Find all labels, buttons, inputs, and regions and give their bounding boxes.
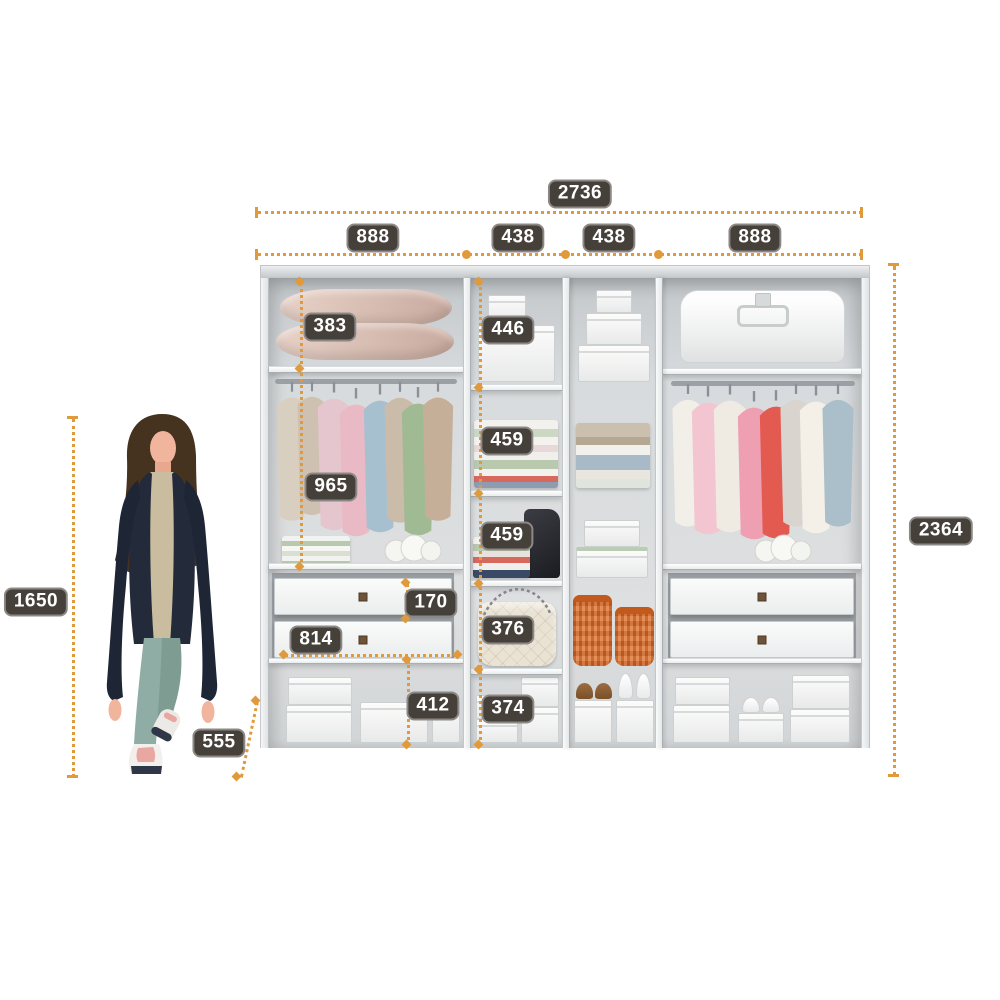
dim-line-total-height (893, 266, 896, 776)
dim-line-total-width (258, 211, 862, 214)
wardrobe-left-wall (260, 278, 269, 748)
shoe-box (792, 675, 850, 709)
dim-label-mid-shelf3: 459 (480, 522, 533, 551)
dim-label-section-1: 888 (346, 224, 399, 253)
dim-marker (462, 250, 471, 259)
dim-label-person-height: 1650 (4, 588, 68, 617)
dim-line-sections (258, 253, 862, 256)
dim-marker (561, 250, 570, 259)
dim-label-mid-shelf2: 459 (480, 427, 533, 456)
dim-marker (654, 250, 663, 259)
shelf-mid (471, 668, 562, 675)
shoe (595, 683, 612, 699)
shoe-box (675, 677, 730, 705)
wardrobe-top-panel (260, 265, 870, 278)
dim-label-mid-top-shelf: 446 (481, 316, 534, 345)
shelf-mid (471, 490, 562, 497)
dim-cap (860, 207, 863, 218)
dim-cap (860, 249, 863, 260)
wardrobe (260, 265, 870, 780)
shoe-box (286, 705, 352, 743)
suitcase (680, 290, 845, 363)
dim-label-mid-bottom: 374 (481, 695, 534, 724)
shoe-box (616, 700, 654, 743)
shelf-mid (471, 384, 562, 391)
storage-box (578, 345, 650, 382)
storage-box (584, 520, 640, 547)
dim-label-section-3: 438 (582, 224, 635, 253)
drawer (670, 621, 854, 658)
wardrobe-right-wall (861, 278, 870, 748)
dim-label-left-bottom: 412 (406, 692, 459, 721)
dim-marker (251, 696, 261, 706)
dim-cap (888, 263, 899, 266)
folded-clothes-stack (282, 536, 350, 563)
basket (615, 607, 654, 666)
handbag-chain (478, 587, 556, 617)
dim-line-person-height (72, 419, 75, 777)
drawer (670, 578, 854, 615)
dim-cap (67, 775, 78, 778)
shoe (576, 683, 593, 699)
dim-label-left-top-shelf: 383 (303, 313, 356, 342)
divider-2 (562, 278, 570, 748)
rolled-towels (752, 533, 814, 563)
dim-label-left-hanging: 965 (304, 473, 357, 502)
shoe-box (790, 709, 850, 743)
dim-cap (888, 774, 899, 777)
shoe-box (288, 677, 352, 705)
divider-3 (655, 278, 663, 748)
storage-box (586, 313, 642, 345)
storage-box (596, 290, 632, 313)
shoe-box (673, 705, 730, 743)
dim-label-section-4: 888 (728, 224, 781, 253)
dim-label-drawer-width: 814 (289, 626, 342, 655)
dim-cap (67, 416, 78, 419)
dim-label-depth: 555 (192, 729, 245, 758)
shelf-right-mid (663, 563, 861, 570)
dim-label-mid-shelf4: 376 (481, 616, 534, 645)
shoe-box (738, 713, 784, 743)
dim-label-drawer-height: 170 (404, 589, 457, 618)
divider-1 (463, 278, 471, 748)
shelf-right-lower (663, 658, 861, 664)
hanging-rod-right (671, 381, 855, 386)
shoe-box (574, 700, 612, 743)
diagram-canvas: 2736 888 438 438 888 383 446 965 459 459… (0, 0, 1000, 1000)
dim-line-mid-interior (479, 282, 482, 746)
basket (573, 595, 612, 666)
dim-cap (255, 249, 258, 260)
rolled-towels (382, 533, 444, 563)
dim-label-total-width: 2736 (548, 180, 612, 209)
shelf-mid (471, 580, 562, 587)
shelf-left-lower (269, 658, 463, 664)
folded-clothes-stack (576, 423, 650, 488)
dim-label-total-height: 2364 (909, 517, 973, 546)
shelf-right-top (663, 368, 861, 375)
dim-label-section-2: 438 (491, 224, 544, 253)
dim-cap (255, 207, 258, 218)
storage-box (576, 547, 648, 578)
